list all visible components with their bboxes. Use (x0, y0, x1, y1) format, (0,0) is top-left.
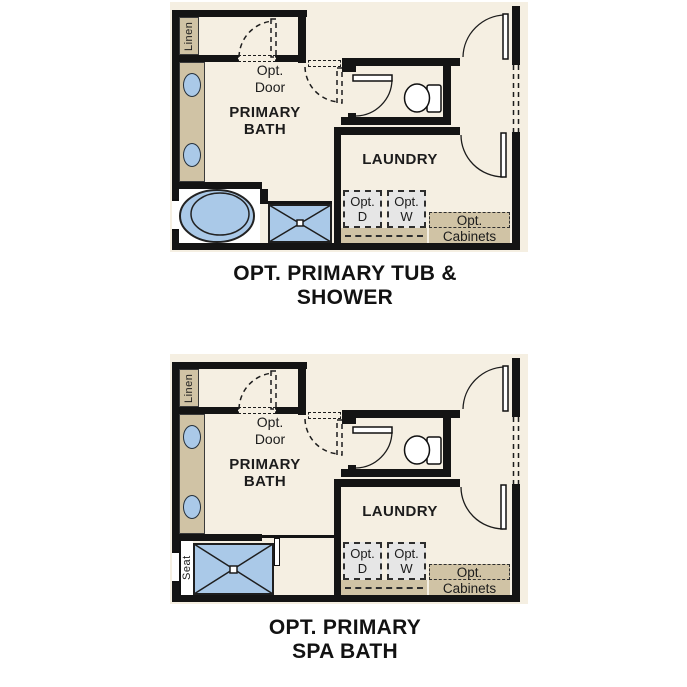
opt-dryer-box: Opt. D (343, 190, 382, 228)
toilet-icon (405, 436, 442, 464)
right-wall-opt-opening (514, 417, 519, 484)
opt-dryer-label-1: Opt. (350, 194, 375, 209)
opt-door-label: Opt. Door (240, 62, 300, 96)
window-icon (172, 551, 179, 583)
toilet-icon (405, 84, 442, 112)
opt-washer-box: Opt. W (387, 542, 426, 580)
plan-tub-shower: Linen Opt. D Opt. W Opt. Cabinets (170, 2, 528, 252)
wall-wc-bottom (341, 117, 450, 125)
tub-alcove (179, 189, 260, 243)
opt-door-opening-1 (238, 55, 276, 62)
primary-bath-label: PRIMARY BATH (210, 456, 320, 490)
laundry-label: LAUNDRY (345, 503, 455, 520)
entry-door-top (463, 14, 508, 59)
opt-door-opening-2 (308, 60, 341, 67)
wall-wc-bottom (341, 469, 450, 477)
linen-label: Linen (183, 373, 195, 402)
opt-door-1 (239, 19, 276, 57)
wall-right-upper (512, 6, 520, 65)
plan-title-tub-shower: OPT. PRIMARY TUB & SHOWER (145, 262, 545, 310)
laundry-door (461, 133, 506, 177)
sink-icon (183, 73, 201, 97)
shower-seat: Seat (179, 541, 193, 595)
floor-plan-sheet: Linen Opt. D Opt. W Opt. Cabinets (0, 0, 687, 687)
wall-laundry-left (334, 479, 341, 595)
wall-wc-right (443, 410, 451, 477)
wall-bath-upper-mid (276, 55, 306, 62)
opt-cabinets-label: Opt. Cabinets (429, 565, 510, 597)
plan-spa-bath: Linen Seat Opt. D Opt. W Opt. Cabinets (170, 354, 528, 604)
wall-wc-corner (342, 410, 356, 424)
opt-door-opening-1 (238, 407, 276, 414)
wall-tub-shower-stub (260, 189, 268, 204)
wall-right-lower (512, 484, 520, 602)
wall-laundry-top (334, 127, 460, 135)
opt-dryer-box: Opt. D (343, 542, 382, 580)
shower-pan (268, 204, 332, 243)
linen-closet: Linen (179, 369, 199, 407)
wall-laundry-left (334, 127, 341, 243)
wall-bath-upper-mid (276, 407, 306, 414)
opt-washer-label-2: W (400, 209, 412, 224)
opt-cabinets-label: Opt. Cabinets (429, 213, 510, 245)
opt-door-2 (305, 67, 342, 103)
laundry-label: LAUNDRY (345, 151, 455, 168)
laundry-door (461, 485, 506, 529)
opt-dryer-label-2: D (358, 209, 367, 224)
entry-door-top (463, 366, 508, 411)
wall-shower-nook (172, 534, 262, 541)
linen-label: Linen (183, 21, 195, 50)
wall-top (172, 362, 307, 369)
washer-dryer-base-dash (345, 235, 423, 237)
opt-washer-box: Opt. W (387, 190, 426, 228)
opt-door-label: Opt. Door (240, 414, 300, 448)
wall-right-lower (512, 132, 520, 250)
opt-washer-label-1: Opt. (394, 546, 419, 561)
opt-door-1 (239, 371, 276, 409)
wc-door (353, 75, 392, 116)
sink-icon (183, 143, 201, 167)
wall-bath-upper-left (172, 55, 238, 62)
wall-laundry-top (334, 479, 460, 487)
primary-bath-label: PRIMARY BATH (210, 104, 320, 138)
wall-wc-corner (342, 58, 356, 72)
wall-top (172, 10, 307, 17)
wall-bath-upper-left (172, 407, 238, 414)
sink-icon (183, 495, 201, 519)
plan-title-spa-bath: OPT. PRIMARY SPA BATH (145, 616, 545, 664)
opt-dryer-label-2: D (358, 561, 367, 576)
wall-tub-nook (172, 182, 262, 189)
linen-closet: Linen (179, 17, 199, 55)
wall-right-upper (512, 358, 520, 417)
sink-icon (183, 425, 201, 449)
right-wall-opt-opening (514, 65, 519, 132)
opt-washer-label-1: Opt. (394, 194, 419, 209)
opt-door-opening-2 (308, 412, 341, 419)
window-icon (172, 199, 179, 231)
washer-dryer-base-dash (345, 587, 423, 589)
opt-dryer-label-1: Opt. (350, 546, 375, 561)
shower-half-wall (262, 535, 334, 538)
shower-glass-return (274, 538, 280, 566)
opt-door-2 (305, 419, 342, 455)
spa-shower-pan (193, 543, 274, 595)
wall-wc-right (443, 58, 451, 125)
opt-washer-label-2: W (400, 561, 412, 576)
wc-door (353, 427, 392, 468)
seat-label: Seat (181, 556, 193, 581)
